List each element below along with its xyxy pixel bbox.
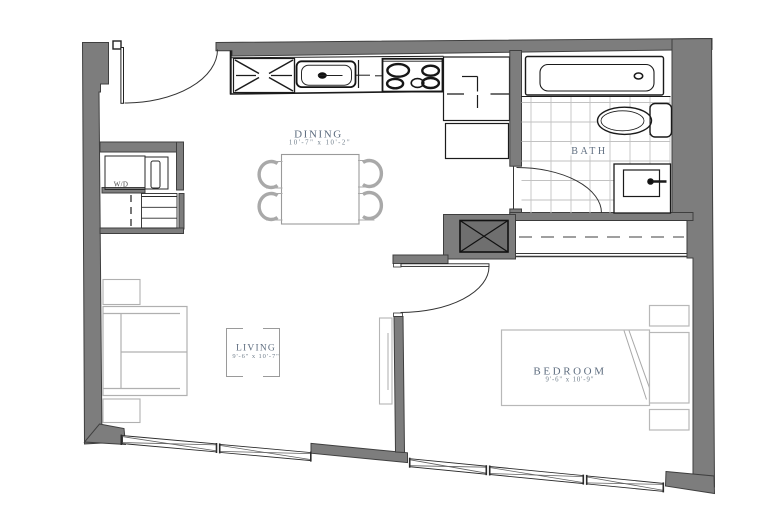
svg-text:10'-7" x 10'-2": 10'-7" x 10'-2"	[289, 140, 351, 147]
svg-text:W/D: W/D	[114, 181, 129, 189]
svg-text:9'-6" x 10'-9": 9'-6" x 10'-9"	[546, 377, 595, 384]
svg-text:LIVING: LIVING	[236, 344, 276, 354]
svg-text:BATH: BATH	[571, 146, 608, 157]
svg-text:9'-6" x 10'-7": 9'-6" x 10'-7"	[232, 353, 279, 360]
